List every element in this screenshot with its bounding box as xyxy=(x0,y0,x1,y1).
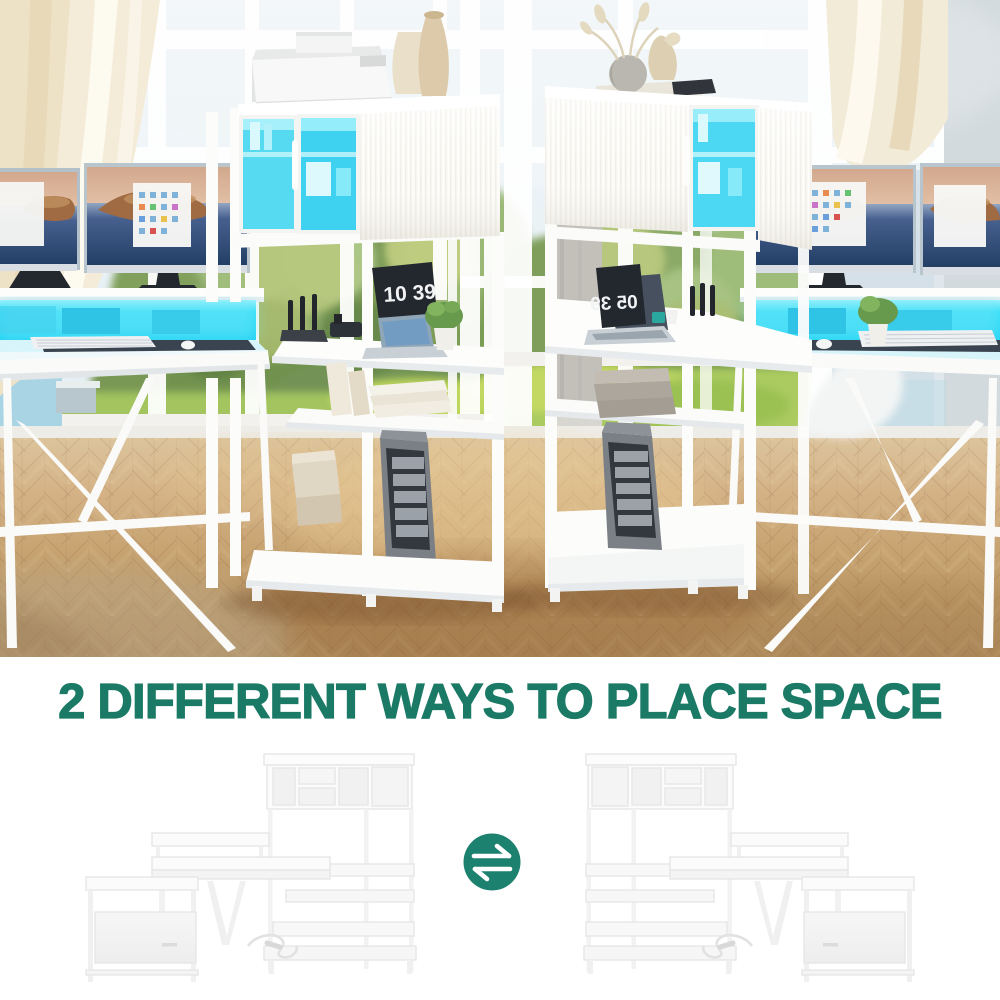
svg-text:05 39: 05 39 xyxy=(590,292,639,315)
svg-text:10 39: 10 39 xyxy=(383,280,437,307)
